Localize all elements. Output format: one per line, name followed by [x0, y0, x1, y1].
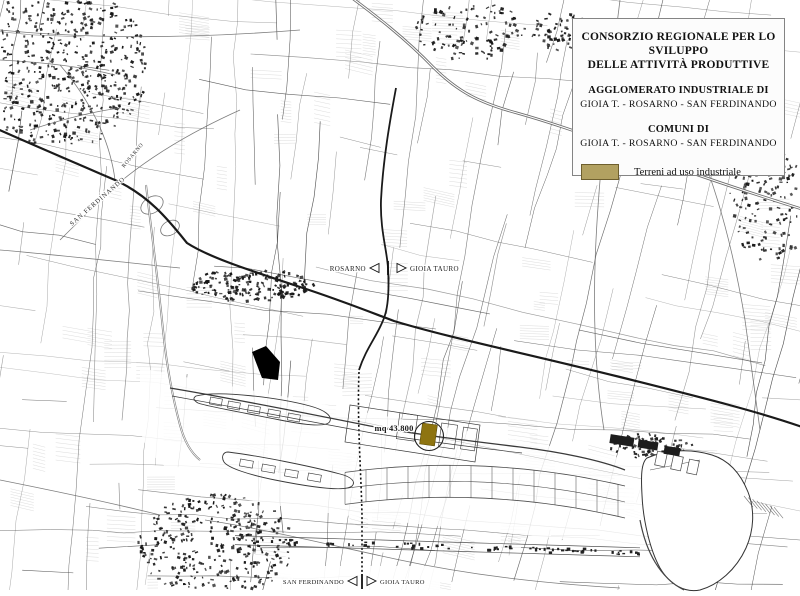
station-marker-center: ROSARNO GIOIA TAURO [330, 261, 459, 275]
map-sheet: mq 43.800 ROSARNO GIOIA TAURO SAN FERDIN… [0, 0, 800, 596]
highlighted-parcel [420, 423, 438, 446]
legend-row: Terreni ad uso industriale [573, 164, 784, 180]
road-label-san-ferdinando: SAN FERDINANDO [69, 176, 127, 228]
station-label-san-ferdinando: SAN FERDINANDO [283, 579, 344, 586]
agglomerato-heading: AGGLOMERATO INDUSTRIALE DI [573, 85, 784, 97]
legend-swatch [581, 164, 619, 180]
station-label-gioia-tauro: GIOIA TAURO [410, 265, 459, 273]
consortium-title-line2: DELLE ATTIVITÀ PRODUTTIVE [573, 58, 784, 72]
comuni-heading: COMUNI DI [573, 124, 784, 136]
parcel-area-label: mq 43.800 [374, 423, 413, 433]
railway-branch-line [359, 88, 396, 370]
station-label-gioia-tauro: GIOIA TAURO [380, 579, 425, 586]
title-box: CONSORZIO REGIONALE PER LO SVILUPPO DELL… [572, 18, 785, 176]
legend-label: Terreni ad uso industriale [634, 167, 741, 178]
left-arrow-icon [370, 264, 379, 273]
consortium-title-line1: CONSORZIO REGIONALE PER LO SVILUPPO [573, 30, 784, 58]
comuni-municipalities: GIOIA T. - ROSARNO - SAN FERDINANDO [573, 138, 784, 150]
station-label-rosarno: ROSARNO [330, 265, 366, 273]
agglomerato-municipalities: GIOIA T. - ROSARNO - SAN FERDINANDO [573, 99, 784, 111]
built-block [252, 346, 280, 380]
